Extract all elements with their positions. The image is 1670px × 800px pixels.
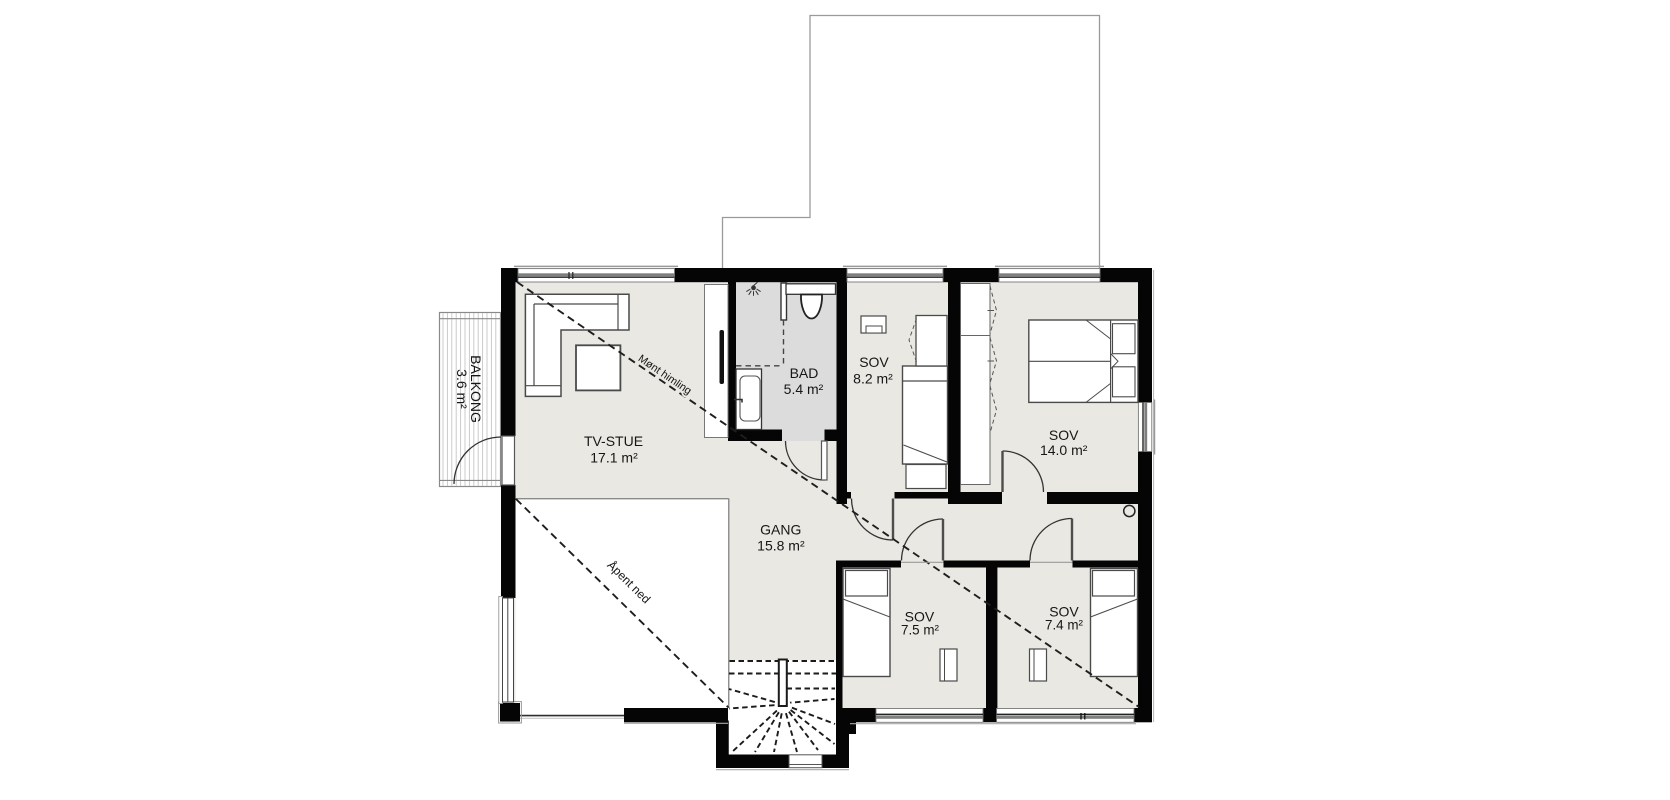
svg-text:8.2 m²: 8.2 m² xyxy=(853,371,893,387)
svg-text:3.6 m²: 3.6 m² xyxy=(454,369,470,409)
svg-text:SOV: SOV xyxy=(859,354,889,370)
svg-text:SOV: SOV xyxy=(1049,427,1079,443)
svg-text:14.0 m²: 14.0 m² xyxy=(1040,442,1088,458)
svg-text:7.4 m²: 7.4 m² xyxy=(1045,618,1083,633)
svg-text:GANG: GANG xyxy=(760,522,801,538)
svg-text:15.8 m²: 15.8 m² xyxy=(757,538,805,554)
svg-text:17.1 m²: 17.1 m² xyxy=(590,450,638,466)
svg-text:5.4 m²: 5.4 m² xyxy=(784,381,824,397)
svg-text:7.5 m²: 7.5 m² xyxy=(901,623,939,638)
svg-text:BAD: BAD xyxy=(790,365,819,381)
svg-text:TV-STUE: TV-STUE xyxy=(584,433,643,449)
